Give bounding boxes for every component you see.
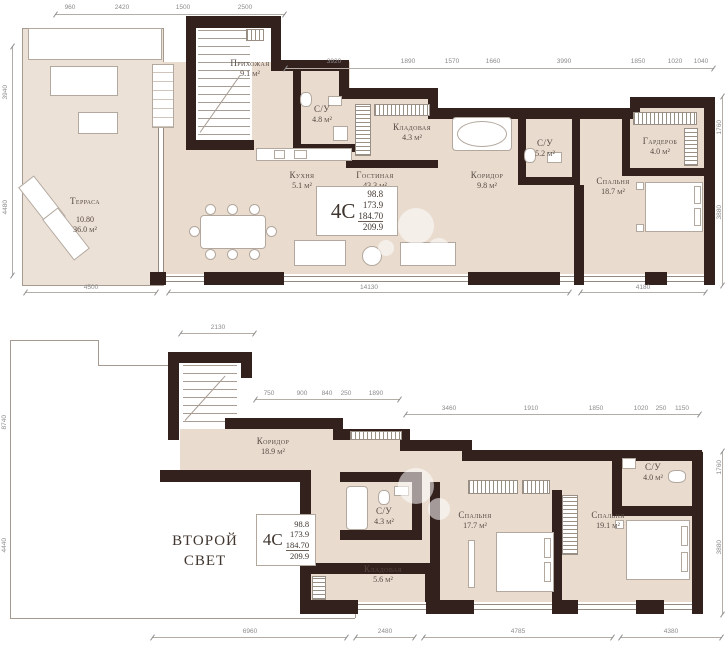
wall — [630, 97, 715, 108]
dim-label: 1760 — [716, 120, 723, 134]
dim-line — [405, 414, 700, 415]
wall — [636, 600, 664, 614]
dim-label: 900 — [297, 390, 308, 397]
dim-label: 4480 — [2, 200, 9, 214]
watermark — [398, 468, 434, 504]
dim-label: 750 — [264, 390, 275, 397]
wall — [168, 352, 252, 363]
room-label-su40: С/У 4.0 м² — [629, 462, 677, 483]
wall — [339, 88, 438, 99]
room-label-terrasa: Терраса 10.80 36.0 м² — [53, 196, 117, 235]
pillow-icon — [681, 552, 688, 572]
void-outline — [10, 340, 98, 341]
wardrobe-rack — [633, 112, 697, 125]
room-area: 18.9 м² — [241, 447, 305, 457]
room-area: 4.3 м² — [380, 133, 444, 143]
dim-label: 8740 — [1, 415, 8, 429]
wardrobe-rack — [522, 480, 550, 494]
room-name: Кладовая — [380, 122, 444, 133]
void-outline — [98, 365, 168, 366]
wall — [160, 470, 305, 482]
room-label-spalnya177: Спальня 17.7 м² — [443, 510, 507, 531]
unit-area-value: 209.9 — [290, 551, 309, 561]
wall — [168, 352, 179, 440]
dim-line — [722, 452, 723, 614]
chair-icon — [205, 249, 216, 260]
wall — [426, 600, 474, 614]
wall — [692, 452, 703, 614]
room-area: 5.2 м² — [521, 149, 569, 159]
dim-label: 840 — [322, 390, 333, 397]
window — [284, 276, 468, 282]
unit-type: 4С — [331, 199, 356, 224]
dim-label: 2420 — [115, 4, 129, 11]
pillow-icon — [681, 526, 688, 546]
dim-label: 6960 — [243, 628, 257, 635]
watermark — [398, 208, 434, 244]
dim-label: 1760 — [716, 460, 723, 474]
room-area: 9.1 м² — [218, 69, 282, 79]
room-name: Спальня — [443, 510, 507, 521]
dim-label: 960 — [65, 4, 76, 11]
room-label-spalnya187: Спальня 18.7 м² — [581, 176, 645, 197]
dim-label: 3940 — [2, 85, 9, 99]
dim-label: 1890 — [401, 58, 415, 65]
watermark — [378, 240, 394, 256]
room-name: С/У — [629, 462, 677, 473]
wall — [468, 272, 560, 285]
dim-label: 1020 — [634, 405, 648, 412]
chair-icon — [266, 226, 277, 237]
void-outline — [10, 618, 355, 619]
dim-line — [255, 399, 400, 400]
dim-label: 1910 — [524, 405, 538, 412]
dim-label: 3880 — [716, 205, 723, 219]
floor-plan-canvas: Прихожая 9.1 м² С/У 4.8 м² Кладовая 4.3 … — [0, 0, 728, 648]
wall — [518, 177, 580, 185]
room-name: Прихожая — [218, 58, 282, 69]
unit-area-value: 184.70 — [358, 211, 383, 223]
storage-shelf — [355, 104, 371, 156]
pillow-icon — [694, 208, 701, 226]
stair-railing — [246, 29, 264, 41]
room-coeff: 10.80 — [53, 215, 117, 225]
dim-line — [580, 292, 706, 293]
wardrobe-rack — [468, 480, 518, 494]
dim-label: 4440 — [1, 538, 8, 552]
chair-icon — [189, 226, 200, 237]
room-label-kladovaya2: Кладовая 5.6 м² — [351, 564, 415, 585]
window — [667, 276, 704, 282]
window — [560, 276, 645, 282]
void-outline — [10, 340, 11, 618]
room-label-spalnya191: Спальня 19.1 м² — [576, 510, 640, 531]
room-area: 5.6 м² — [351, 575, 415, 585]
void-label: ВТОРОЙ СВЕТ — [160, 532, 250, 571]
room-area: 4.3 м² — [360, 517, 408, 527]
stairs-icon — [183, 365, 237, 425]
pillow-icon — [544, 538, 551, 558]
dim-line — [168, 292, 570, 293]
sink-icon — [274, 150, 285, 159]
room-area: 18.7 м² — [581, 187, 645, 197]
dim-label: 1890 — [369, 390, 383, 397]
pillow-icon — [544, 562, 551, 582]
dim-label: 1660 — [486, 58, 500, 65]
dim-label: 2500 — [238, 4, 252, 11]
room-name: Коридор — [241, 436, 305, 447]
dim-label: 1850 — [589, 405, 603, 412]
dim-line — [620, 637, 722, 638]
window — [358, 604, 426, 610]
window — [664, 604, 692, 610]
dim-label: 3990 — [557, 58, 571, 65]
room-area: 36.0 м² — [53, 225, 117, 235]
dim-label: 3880 — [716, 540, 723, 554]
dim-label: 3460 — [442, 405, 456, 412]
dim-label: 1020 — [668, 58, 682, 65]
room-name: Гардероб — [628, 136, 692, 147]
room-area: 4.0 м² — [629, 473, 677, 483]
dim-label: 1500 — [176, 4, 190, 11]
dim-label: 3920 — [327, 58, 341, 65]
wall — [186, 16, 196, 150]
dim-line — [12, 47, 13, 275]
room-label-kladovaya: Кладовая 4.3 м² — [380, 122, 444, 143]
room-label-prihozhaya: Прихожая 9.1 м² — [218, 58, 282, 79]
dim-label: 4180 — [636, 284, 650, 291]
wall — [225, 418, 343, 429]
dim-line — [55, 14, 285, 15]
room-label-garderob: Гардероб 4.0 м² — [628, 136, 692, 157]
coffee-table-icon — [78, 112, 118, 134]
room-name: С/У — [521, 138, 569, 149]
unit-area-value: 173.9 — [290, 529, 309, 539]
wall — [462, 450, 702, 461]
wall — [572, 119, 580, 185]
wall — [346, 160, 438, 168]
unit-type: 4С — [263, 530, 283, 550]
room-name: Коридор — [455, 170, 519, 181]
wall — [186, 16, 281, 28]
chair-icon — [227, 204, 238, 215]
terrace-parapet — [28, 28, 162, 60]
room-name: Кухня — [278, 170, 326, 181]
toilet-icon — [378, 490, 390, 505]
shelf-icon — [152, 64, 174, 128]
wall — [340, 530, 422, 540]
unit-area-value: 184.70 — [286, 540, 309, 551]
unit-info-box: 4С 98.8 173.9 184.70 209.9 — [256, 514, 316, 566]
sofa-icon — [294, 240, 346, 266]
unit-area-value: 173.9 — [363, 200, 383, 211]
room-label-su43: С/У 4.3 м² — [360, 506, 408, 527]
unit-areas: 98.8 173.9 184.70 209.9 — [286, 519, 309, 561]
stove-icon — [294, 150, 307, 159]
wall — [204, 272, 284, 285]
room-label-koridor: Коридор 9.8 м² — [455, 170, 519, 191]
washer-icon — [333, 126, 348, 141]
wall — [241, 352, 252, 378]
room-name: С/У — [298, 104, 346, 115]
wall — [300, 600, 358, 614]
chair-icon — [227, 249, 238, 260]
room-label-koridor2: Коридор 18.9 м² — [241, 436, 305, 457]
window — [166, 276, 204, 282]
void-outline — [98, 340, 99, 365]
chair-icon — [249, 204, 260, 215]
dim-label: 4785 — [511, 628, 525, 635]
wall — [630, 168, 715, 176]
room-area: 4.8 м² — [298, 115, 346, 125]
room-name: Терраса — [53, 196, 117, 207]
dim-label: 4500 — [84, 284, 98, 291]
unit-area-value: 98.8 — [367, 189, 383, 200]
room-area: 4.0 м² — [628, 147, 692, 157]
window — [578, 604, 636, 610]
room-name: Гостиная — [343, 170, 407, 181]
dim-label: 250 — [341, 390, 352, 397]
wall — [612, 452, 622, 514]
dim-label: 4380 — [664, 628, 678, 635]
wall — [574, 185, 584, 285]
dim-line — [285, 68, 714, 69]
dim-label: 2480 — [378, 628, 392, 635]
dim-line — [25, 292, 157, 293]
room-area: 17.7 м² — [443, 521, 507, 531]
nightstand-icon — [636, 224, 644, 232]
unit-info-box: 4С 98.8 173.9 184.70 209.9 — [316, 186, 398, 236]
dim-label: 250 — [656, 405, 667, 412]
dim-label: 1150 — [675, 405, 689, 412]
wall — [704, 97, 715, 285]
wardrobe-rack — [350, 431, 402, 440]
room-name: Спальня — [581, 176, 645, 187]
dining-table-icon — [200, 215, 266, 249]
dim-label: 14130 — [360, 284, 378, 291]
storage-shelf — [312, 576, 326, 600]
chair-icon — [205, 204, 216, 215]
dim-label: 1040 — [694, 58, 708, 65]
dim-line — [180, 333, 255, 334]
wall — [186, 140, 254, 150]
room-area: 9.8 м² — [455, 181, 519, 191]
dim-label: 2130 — [211, 324, 225, 331]
unit-area-value: 98.8 — [294, 519, 309, 529]
unit-area-value: 209.9 — [363, 222, 383, 233]
window — [474, 604, 552, 610]
dim-label: 1850 — [631, 58, 645, 65]
watermark — [428, 238, 450, 260]
wall — [150, 272, 166, 285]
sofa-icon — [50, 66, 118, 96]
pillow-icon — [694, 186, 701, 204]
room-label-su48: С/У 4.8 м² — [298, 104, 346, 125]
dim-label: 1570 — [445, 58, 459, 65]
radiator-icon — [468, 540, 475, 588]
wall — [552, 600, 578, 614]
dim-line — [423, 637, 613, 638]
bathtub-inner — [457, 121, 507, 147]
room-area: 19.1 м² — [576, 521, 640, 531]
room-name: С/У — [360, 506, 408, 517]
room-name: Кладовая — [351, 564, 415, 575]
dim-line — [152, 637, 347, 638]
chair-icon — [249, 249, 260, 260]
unit-areas: 98.8 173.9 184.70 209.9 — [358, 189, 383, 233]
storage-shelf — [374, 104, 430, 116]
room-name: Спальня — [576, 510, 640, 521]
room-label-su52: С/У 5.2 м² — [521, 138, 569, 159]
dim-line — [355, 637, 415, 638]
